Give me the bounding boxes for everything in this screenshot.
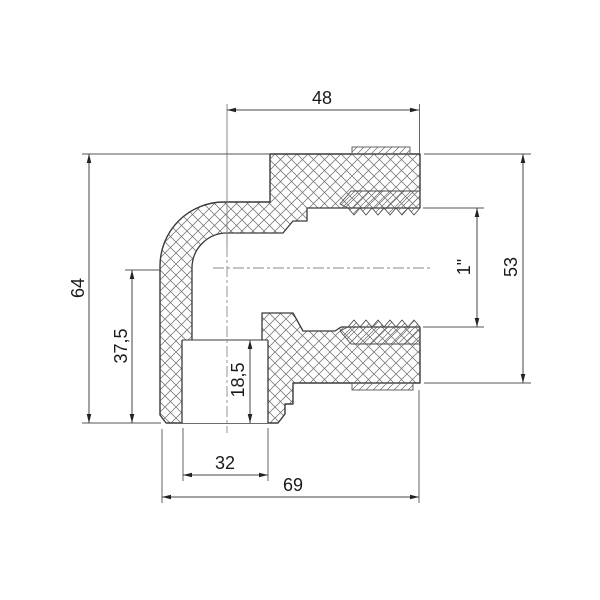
mould-tab-top [352, 147, 410, 154]
dim-label-socket-length: 48 [312, 88, 332, 108]
dimension-thread-size: 1" [454, 208, 479, 327]
dim-label-socket-depth: 18,5 [228, 362, 248, 397]
dim-arrow [521, 374, 526, 383]
dim-arrow [475, 318, 480, 327]
fitting-body [160, 147, 420, 423]
dim-label-spigot-bore: 32 [215, 453, 235, 473]
dim-arrow [259, 473, 268, 478]
dimension-total-height: 64 [68, 154, 91, 423]
dim-arrow [130, 270, 135, 279]
dim-arrow [475, 208, 480, 217]
drawing-canvas: 48 69 32 64 37,5 18,5 53 [0, 0, 600, 600]
dim-label-outer-diameter: 53 [501, 257, 521, 277]
dim-arrow [87, 414, 92, 423]
bore-fill [182, 208, 420, 423]
dim-arrow [227, 108, 236, 113]
dim-label-body-height: 37,5 [111, 328, 131, 363]
dim-arrow [410, 495, 419, 500]
dim-label-total-width: 69 [283, 475, 303, 495]
dim-arrow [87, 154, 92, 163]
dim-arrow [162, 495, 171, 500]
fitting-section-drawing: 48 69 32 64 37,5 18,5 53 [0, 0, 600, 600]
dimension-total-width: 69 [162, 475, 419, 499]
dim-label-total-height: 64 [68, 278, 88, 298]
mould-tab-bottom [352, 383, 413, 390]
dimension-body-height: 37,5 [111, 270, 134, 423]
dimension-outer-diameter: 53 [501, 154, 525, 383]
dim-arrow [410, 108, 419, 113]
dim-arrow [521, 154, 526, 163]
dim-label-thread-size: 1" [454, 259, 474, 275]
dim-arrow [183, 473, 192, 478]
dim-arrow [130, 414, 135, 423]
dimension-spigot-bore: 32 [183, 453, 268, 477]
dimension-socket-length: 48 [227, 88, 419, 112]
